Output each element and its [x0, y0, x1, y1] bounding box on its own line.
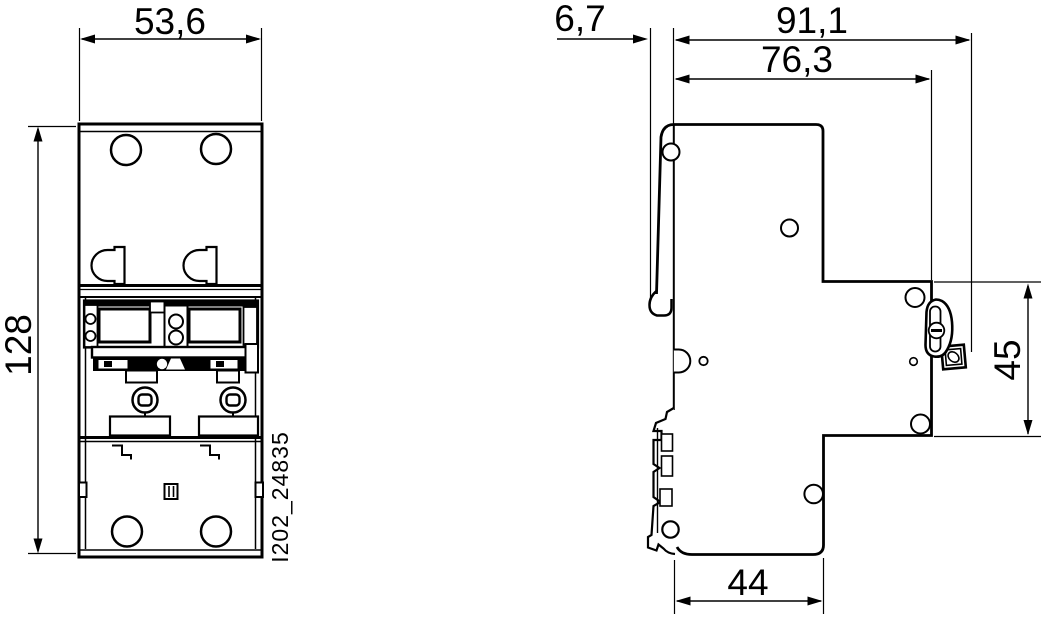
grille-frame [165, 484, 178, 499]
dim-front-width: 53,6 [134, 1, 206, 42]
side-hole-top-front [663, 144, 680, 161]
side-face-bump [674, 350, 691, 373]
arrowhead-right [956, 36, 971, 45]
mechanism-block-right [189, 309, 240, 342]
dim-side-housing: 76,3 [761, 39, 833, 80]
side-view [648, 125, 966, 555]
arrowhead-down [34, 539, 43, 554]
mechanism-tab-right [217, 371, 239, 383]
side-pin-hole [699, 357, 707, 365]
front-side-notch-right [256, 483, 264, 498]
mechanism-left-detail-1 [86, 314, 96, 324]
side-hole-lower-back [804, 485, 823, 504]
dim-side-recess: 45 [987, 339, 1028, 380]
side-small-pin [910, 358, 918, 366]
mechanism-lower-detail-right [216, 361, 224, 367]
front-bottom-hole-right [201, 517, 231, 547]
side-hole-recess-top [906, 288, 925, 307]
arrowhead-right [633, 35, 648, 44]
mechanism-lower-roller [157, 359, 167, 369]
part-number-label: I202_24835 [267, 431, 293, 563]
mechanism-center-roller-2 [169, 331, 183, 345]
front-top-hole-left [111, 135, 141, 165]
mechanism-crossbar-end [246, 344, 259, 373]
side-hole-recess-bottom [911, 415, 930, 434]
front-top-hole-right [201, 134, 231, 164]
arrowhead-left [80, 35, 95, 44]
arrowhead-left [675, 75, 690, 84]
arrowhead-up [34, 127, 43, 142]
mechanism-top-strip [85, 302, 257, 307]
terminal-screw-slot-right [227, 395, 240, 406]
arrowhead-right [916, 75, 931, 84]
mechanism-center-roller-1 [169, 315, 183, 329]
mechanism-lower-detail-left [104, 361, 112, 367]
side-housing-outline [657, 125, 932, 555]
front-bottom-hole-left [112, 517, 142, 547]
dim-side-overall: 91,1 [776, 0, 848, 41]
mechanism-block-left [99, 309, 150, 342]
mechanism-crossbar [92, 347, 253, 358]
front-center-grille [165, 484, 178, 499]
clip-detail-1 [662, 434, 673, 451]
dim-side-base: 44 [727, 562, 768, 603]
terminal-screw-slot-left [139, 395, 152, 406]
mechanism-tab-left [126, 371, 157, 383]
dim-front-height: 128 [0, 314, 39, 376]
front-view [79, 124, 263, 557]
mechanism-center-step [150, 302, 165, 313]
clip-detail-3 [660, 489, 672, 506]
dim-side-protrusion: 6,7 [554, 0, 605, 39]
mechanism-left-detail-2 [86, 331, 96, 341]
side-hole-upper [781, 220, 798, 237]
arrowhead-left [675, 36, 690, 45]
mechanism-lower-cutout-left [98, 360, 128, 370]
front-mechanism [84, 301, 258, 383]
mechanism-right-cap [244, 307, 258, 345]
terminal-opening-right [199, 417, 258, 436]
arrowhead-down [1024, 420, 1033, 435]
drawing-svg: 53,6 128 I202_24835 [0, 0, 1043, 620]
arrowhead-left [676, 597, 691, 606]
arrowhead-right [246, 35, 261, 44]
clip-hole [662, 521, 678, 537]
arrowhead-right [808, 597, 823, 606]
front-side-notch-left [79, 483, 87, 498]
terminal-opening-left [110, 417, 170, 436]
dimension-drawing: 53,6 128 I202_24835 [0, 0, 1043, 620]
arrowhead-up [1024, 284, 1033, 299]
clip-detail-2 [662, 456, 673, 476]
